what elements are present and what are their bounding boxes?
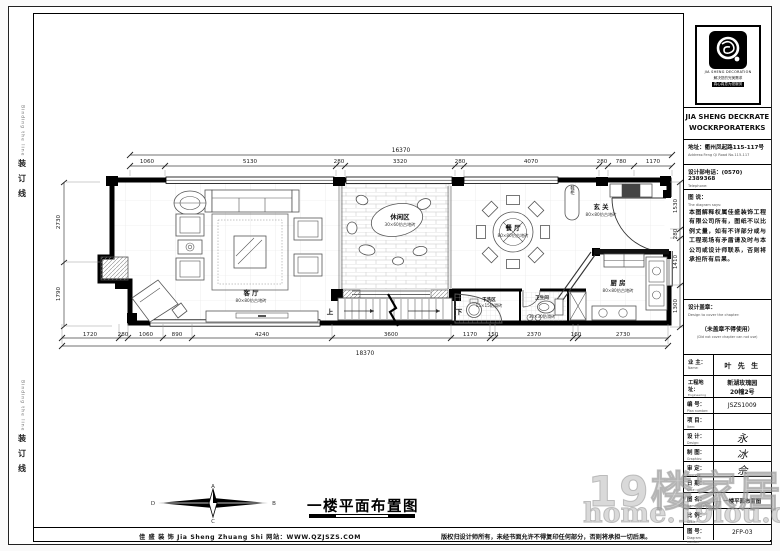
row-value [714, 414, 771, 429]
table-row-item: 项 目：Item: [684, 414, 771, 430]
row-label-en: Name for plan: [687, 504, 713, 508]
says-body: 本图解释权属佳盛装饰工程有限公司所有，图纸不以比例丈量，如有不详部分或与工程现场… [684, 207, 771, 266]
dim: 2730 [616, 332, 631, 338]
row-label: 设 计：Design: [684, 430, 714, 445]
compass-w: D [151, 501, 155, 507]
seal-section: 设计盖章： Design to cover the chapter: （未盖章不… [684, 300, 771, 355]
footer-copyright: 版权归设计师所有，未经书面允许不得复印任何部分，否则将承担一切后果。 [441, 532, 651, 541]
phone-section: 设计部电话：(0570) 2389368 Telephone: [684, 165, 771, 190]
row-label-cn: 设 计： [687, 432, 713, 440]
stairs-up-label: 上 [327, 307, 334, 316]
row-label: 日 期：Date: [684, 477, 714, 492]
row-label: 图 号：Diagram number: [684, 525, 714, 540]
says-label-cn: 图 说： [688, 193, 768, 201]
diagram-says-section: 图 说： The diagram says: 本图解释权属佳盛装饰工程有限公司所… [684, 190, 771, 300]
company-name-line2: WOCKRPORATERKS [684, 123, 771, 134]
address-cn: 地址：衢州凤起路115-117号 [688, 143, 768, 151]
wash-label: 干洗区 [482, 296, 496, 303]
logo-en-text: JIA SHENG DECORATION [697, 70, 759, 74]
company-logo-icon [709, 31, 747, 69]
row-label-en: Approve: [687, 473, 713, 477]
owner-label-en: Name: [688, 366, 713, 370]
entry-cabinet-center [622, 184, 640, 197]
site-label-cell: 工程地址： Engineering address: [684, 376, 714, 397]
binding-line-cn: 装订线 [17, 434, 28, 479]
dim: 1060 [139, 332, 154, 338]
toilet-label: 卫生间 [535, 294, 549, 301]
owner-label: 业 主： [688, 358, 713, 366]
row-label-en: Scale: [687, 520, 713, 524]
row-label-cn: 制 图： [687, 448, 713, 456]
dim: 280 [673, 228, 679, 239]
table-row-approve: 审 定：Approve: 佘 [684, 462, 771, 478]
seal-note-cn: （未盖章不得使用） [684, 324, 771, 333]
flue-hatch [101, 257, 128, 280]
dim-top-total: 16370 [392, 148, 411, 154]
company-name-line1: JIA SHENG DECKRATE [684, 112, 771, 123]
binding-line-bottom: Binding the line 装订线 [12, 380, 32, 479]
seal-header: 设计盖章： Design to cover the chapter: [684, 300, 771, 317]
dim: 890 [172, 332, 183, 338]
dim-bottom-total: 18370 [356, 351, 375, 357]
table-row-graphics: 制 图：Graphics: 冰 [684, 446, 771, 462]
kitchen-label: 厨 房 [610, 278, 626, 287]
site-value-line1: 新湖玫瑰园 [714, 379, 771, 388]
table-row-date: 日 期：Date: [684, 477, 771, 493]
owner-label-cell: 业 主： Name: [684, 355, 714, 375]
dim: 1060 [140, 159, 155, 165]
address-en: Address:Feng Qi Road No.115-117 [688, 153, 768, 157]
diagram-number-value: 2FP-03 [714, 525, 771, 540]
toilet-fixture [538, 301, 555, 313]
binding-line-top: Binding the line 装订线 [12, 105, 32, 204]
footer-company: 佳 盛 装 饰 Jia Sheng Zhuang Shi 网站：WWW.QZJS… [139, 532, 361, 541]
logo-section: JIA SHENG DECORATION 解决您的完美需求 真心真意为您服务 [684, 13, 771, 108]
dining-label: 餐 厅 [505, 223, 521, 232]
shoe-cabinet-label: 鞋柜 [570, 184, 575, 195]
row-label-cn: 图 号： [687, 527, 713, 535]
dim: 280 [118, 332, 129, 338]
seal-note-en: (Did not cover chapter can not use) [684, 335, 771, 339]
compass-s: C [211, 519, 215, 524]
row-label: 编 号：Plan number: [684, 398, 714, 413]
binding-line-en: Binding the line [20, 380, 25, 431]
drawing-sheet: { "frame": { "binding_cn": "装订线", "bindi… [0, 0, 780, 551]
footer-strip: 佳 盛 装 饰 Jia Sheng Zhuang Shi 网站：WWW.QZJS… [33, 527, 684, 542]
says-header: 图 说： The diagram says: [684, 190, 771, 207]
row-label-cn: 审 定： [687, 464, 713, 472]
phone-en: Telephone: [688, 184, 768, 188]
logo-slogan2: 真心真意为您服务 [712, 82, 745, 87]
binding-line-cn: 装订线 [17, 159, 28, 204]
row-value: JSZS1009 [714, 398, 771, 413]
compass-e: B [272, 501, 276, 507]
dim: 280 [597, 159, 608, 165]
seal-label-cn: 设计盖章： [688, 303, 768, 311]
approve-signature: 佘 [714, 462, 771, 477]
dim: 1300 [673, 298, 679, 313]
bar-segment [389, 514, 415, 518]
dim: 4070 [524, 159, 539, 165]
row-label: 比 例：Scale: [684, 509, 714, 524]
stairs-down-label: 下 [456, 308, 463, 316]
dim: 160 [571, 332, 582, 338]
row-label: 项 目：Item: [684, 414, 714, 429]
phone-cn: 设计部电话：(0570) 2389368 [688, 168, 768, 182]
leisure-label: 休闲区 [389, 212, 410, 221]
owner-value: 叶 先 生 [714, 355, 771, 375]
binding-line-en: Binding the line [20, 105, 25, 156]
plan-title-underline [309, 514, 415, 518]
row-label: 审 定：Approve: [684, 462, 714, 477]
design-signature: 永 [714, 430, 771, 445]
dim: 4240 [255, 332, 270, 338]
entry-tile: 80×80仿古地砖 [586, 211, 617, 218]
row-label-en: Graphics: [687, 457, 713, 461]
floor-plan: 16370 1060 5130 280 3320 280 4070 280 78… [35, 143, 700, 362]
row-label-cn: 日 期： [687, 479, 713, 487]
entry-label: 玄 关 [593, 202, 609, 211]
row-label: 图 名：Name for plan: [684, 493, 714, 508]
site-value: 新湖玫瑰园 20幢2号 [714, 376, 771, 397]
leisure-tile: 30×60仿古地砖 [385, 221, 416, 228]
wash-tile: 15×15防滑砖 [476, 302, 503, 309]
dim: 1720 [83, 332, 98, 338]
dim: 1790 [56, 286, 62, 301]
logo-slogan1: 解决您的完美需求 [697, 76, 759, 81]
logo-seal-icon [709, 31, 747, 69]
company-name-section: JIA SHENG DECKRATE WOCKRPORATERKS [684, 108, 771, 140]
dim: 280 [455, 159, 466, 165]
living-room-tile: 80×80仿古地砖 [236, 297, 267, 304]
row-label-cn: 项 目： [687, 416, 713, 424]
dim: 1410 [673, 254, 679, 269]
row-label-cn: 编 号： [687, 400, 713, 408]
row-label-en: Plan number: [687, 409, 713, 413]
table-row-design: 设 计：Design: 永 [684, 430, 771, 446]
dim: 2730 [56, 214, 62, 229]
title-block: JIA SHENG DECORATION 解决您的完美需求 真心真意为您服务 J… [683, 13, 771, 540]
plan-name-value: 一楼平面布置图 [714, 493, 771, 508]
site-value-line2: 20幢2号 [714, 388, 771, 397]
logo-box: JIA SHENG DECORATION 解决您的完美需求 真心真意为您服务 [695, 25, 761, 105]
dining-tile: 80×80仿古地砖 [498, 232, 529, 239]
titleblock-table: 编 号：Plan number: JSZS1009 项 目：Item: 设 计：… [684, 398, 771, 540]
row-value [714, 477, 771, 492]
row-label-en: Item: [687, 425, 713, 429]
dim: 1530 [673, 198, 679, 213]
row-label-cn: 图 名： [687, 495, 713, 503]
table-row-scale: 比 例：Scale: [684, 509, 771, 525]
dim: 150 [488, 332, 499, 338]
dim: 2370 [527, 332, 542, 338]
dim: 280 [334, 159, 345, 165]
site-label: 工程地址： [688, 379, 713, 393]
toilet-tile: 30×30防滑砖 [529, 313, 556, 320]
site-section: 工程地址： Engineering address: 新湖玫瑰园 20幢2号 [684, 376, 771, 398]
bar-segment [335, 514, 389, 518]
table-row-plan-number: 编 号：Plan number: JSZS1009 [684, 398, 771, 414]
plan-title: 一楼平面布置图 [298, 495, 428, 516]
row-label-cn: 比 例： [687, 511, 713, 519]
row-label-en: Design: [687, 441, 713, 445]
row-value [714, 509, 771, 524]
dim: 3600 [384, 332, 399, 338]
address-section: 地址：衢州凤起路115-117号 Address:Feng Qi Road No… [684, 140, 771, 165]
dim: 1170 [646, 159, 661, 165]
north-compass: A B C D [150, 482, 280, 524]
row-label: 制 图：Graphics: [684, 446, 714, 461]
row-label-en: Date: [687, 488, 713, 492]
dim: 780 [616, 159, 627, 165]
compass-n: A [211, 484, 215, 490]
kitchen-tile: 80×80仿古地砖 [603, 287, 634, 294]
row-label-en: Diagram number: [687, 536, 713, 544]
dim: 3320 [393, 159, 408, 165]
living-room-label: 客 厅 [242, 288, 259, 297]
dim: 5130 [243, 159, 258, 165]
seal-label-en: Design to cover the chapter: [688, 313, 768, 317]
dim: 1170 [463, 332, 478, 338]
graphics-signature: 冰 [714, 446, 771, 461]
table-row-diagram-number: 图 号：Diagram number: 2FP-03 [684, 525, 771, 540]
table-row-plan-name: 图 名：Name for plan: 一楼平面布置图 [684, 493, 771, 509]
bar-segment [309, 514, 335, 518]
owner-section: 业 主： Name: 叶 先 生 [684, 355, 771, 376]
